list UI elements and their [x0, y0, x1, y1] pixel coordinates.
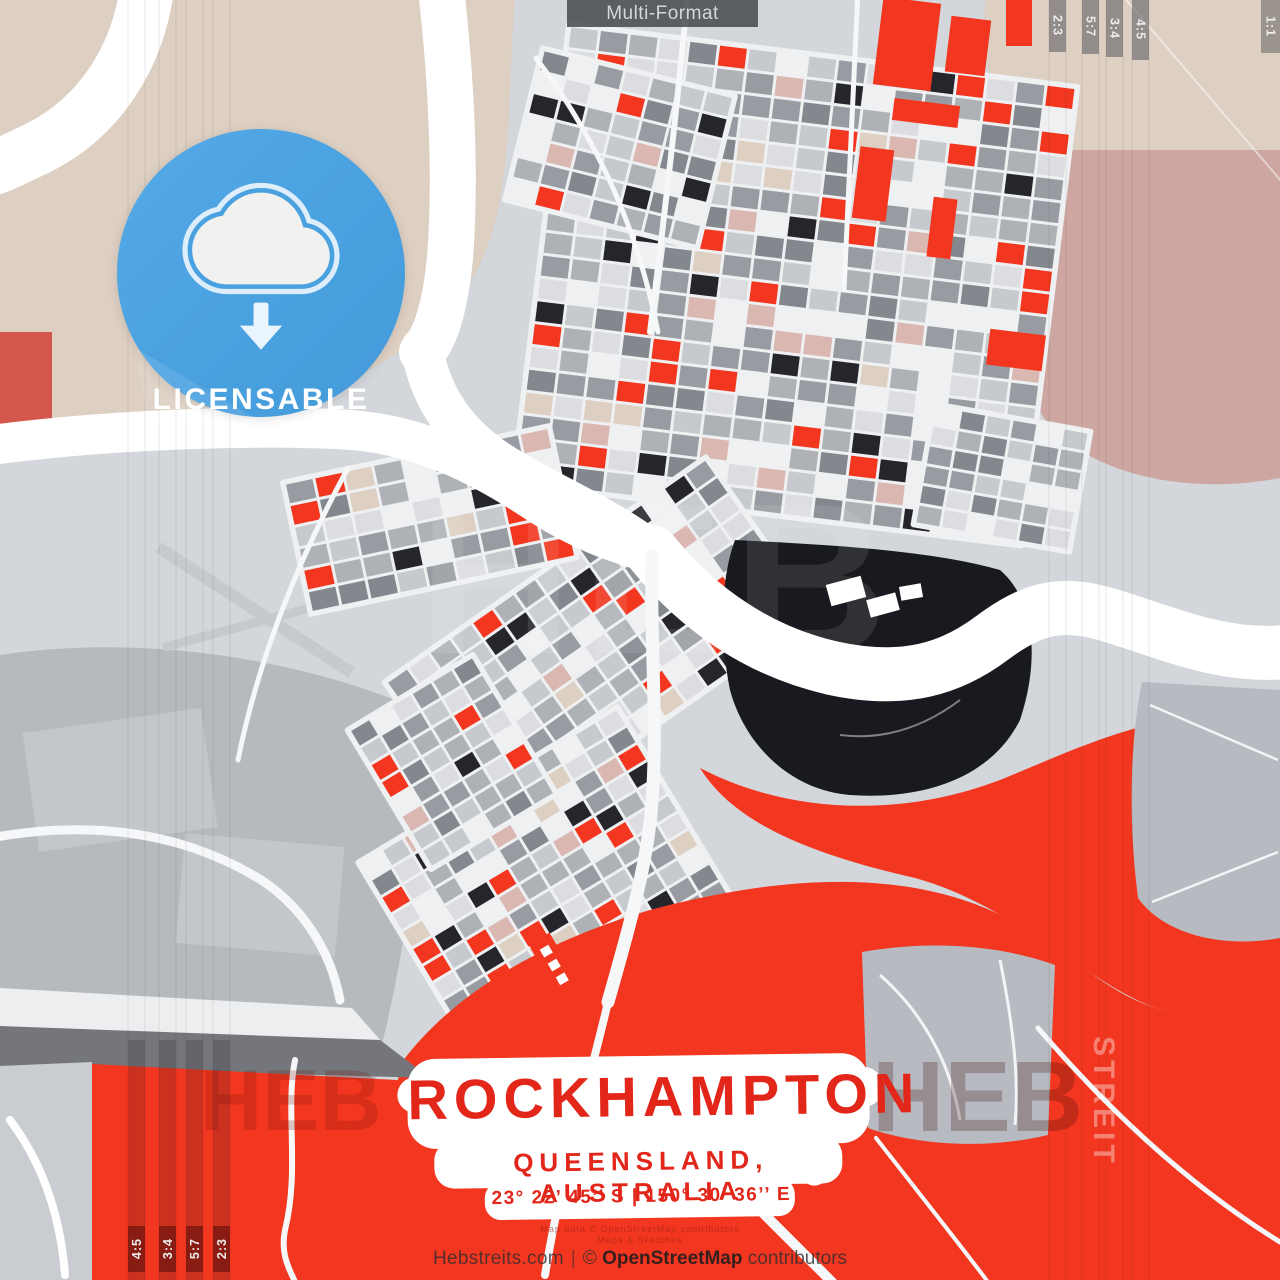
- aspect-ratio-marker: 2:3: [1049, 0, 1066, 52]
- aspect-ratio-label: 5:7: [1084, 16, 1098, 37]
- aspect-ratio-label: 1:1: [1264, 16, 1278, 37]
- aspect-ratio-marker: 3:4: [1106, 0, 1123, 57]
- copyright-symbol: ©: [583, 1248, 597, 1269]
- aspect-ratio-marker: 5:7: [1082, 0, 1099, 54]
- osm-name: OpenStreetMap: [602, 1248, 742, 1269]
- title-block: ROCKHAMPTON QUEENSLAND, AUSTRALIA 23° 22…: [407, 1047, 874, 1231]
- fine-print-line-2: Maps & Sketches: [0, 1235, 1280, 1245]
- multi-format-label: Multi-Format: [567, 0, 758, 27]
- aspect-ratio-marker: 1:1: [1261, 0, 1280, 53]
- licensable-badge: LICENSABLE: [117, 129, 405, 417]
- fine-print-line-1: Map data © OpenStreetMap contributors: [0, 1224, 1280, 1234]
- aspect-ratio-label: 3:4: [1108, 18, 1122, 39]
- contributors-text: contributors: [748, 1248, 847, 1269]
- footer-divider: |: [571, 1248, 576, 1269]
- map-poster-preview[interactable]: HEB HEB HEB STREIT 2:35:73:44:51:14:53:4…: [0, 0, 1280, 1280]
- cloud-download-icon: [175, 159, 347, 381]
- aspect-ratio-marker: 4:5: [1132, 0, 1149, 60]
- attribution-footer: Hebstreits.com|© OpenStreetMap contribut…: [0, 1248, 1280, 1270]
- aspect-ratio-label: 4:5: [1134, 19, 1148, 40]
- site-name: Hebstreits.com: [433, 1248, 564, 1269]
- aspect-ratio-label: 2:3: [1051, 15, 1065, 36]
- city-title: ROCKHAMPTON: [407, 1061, 873, 1132]
